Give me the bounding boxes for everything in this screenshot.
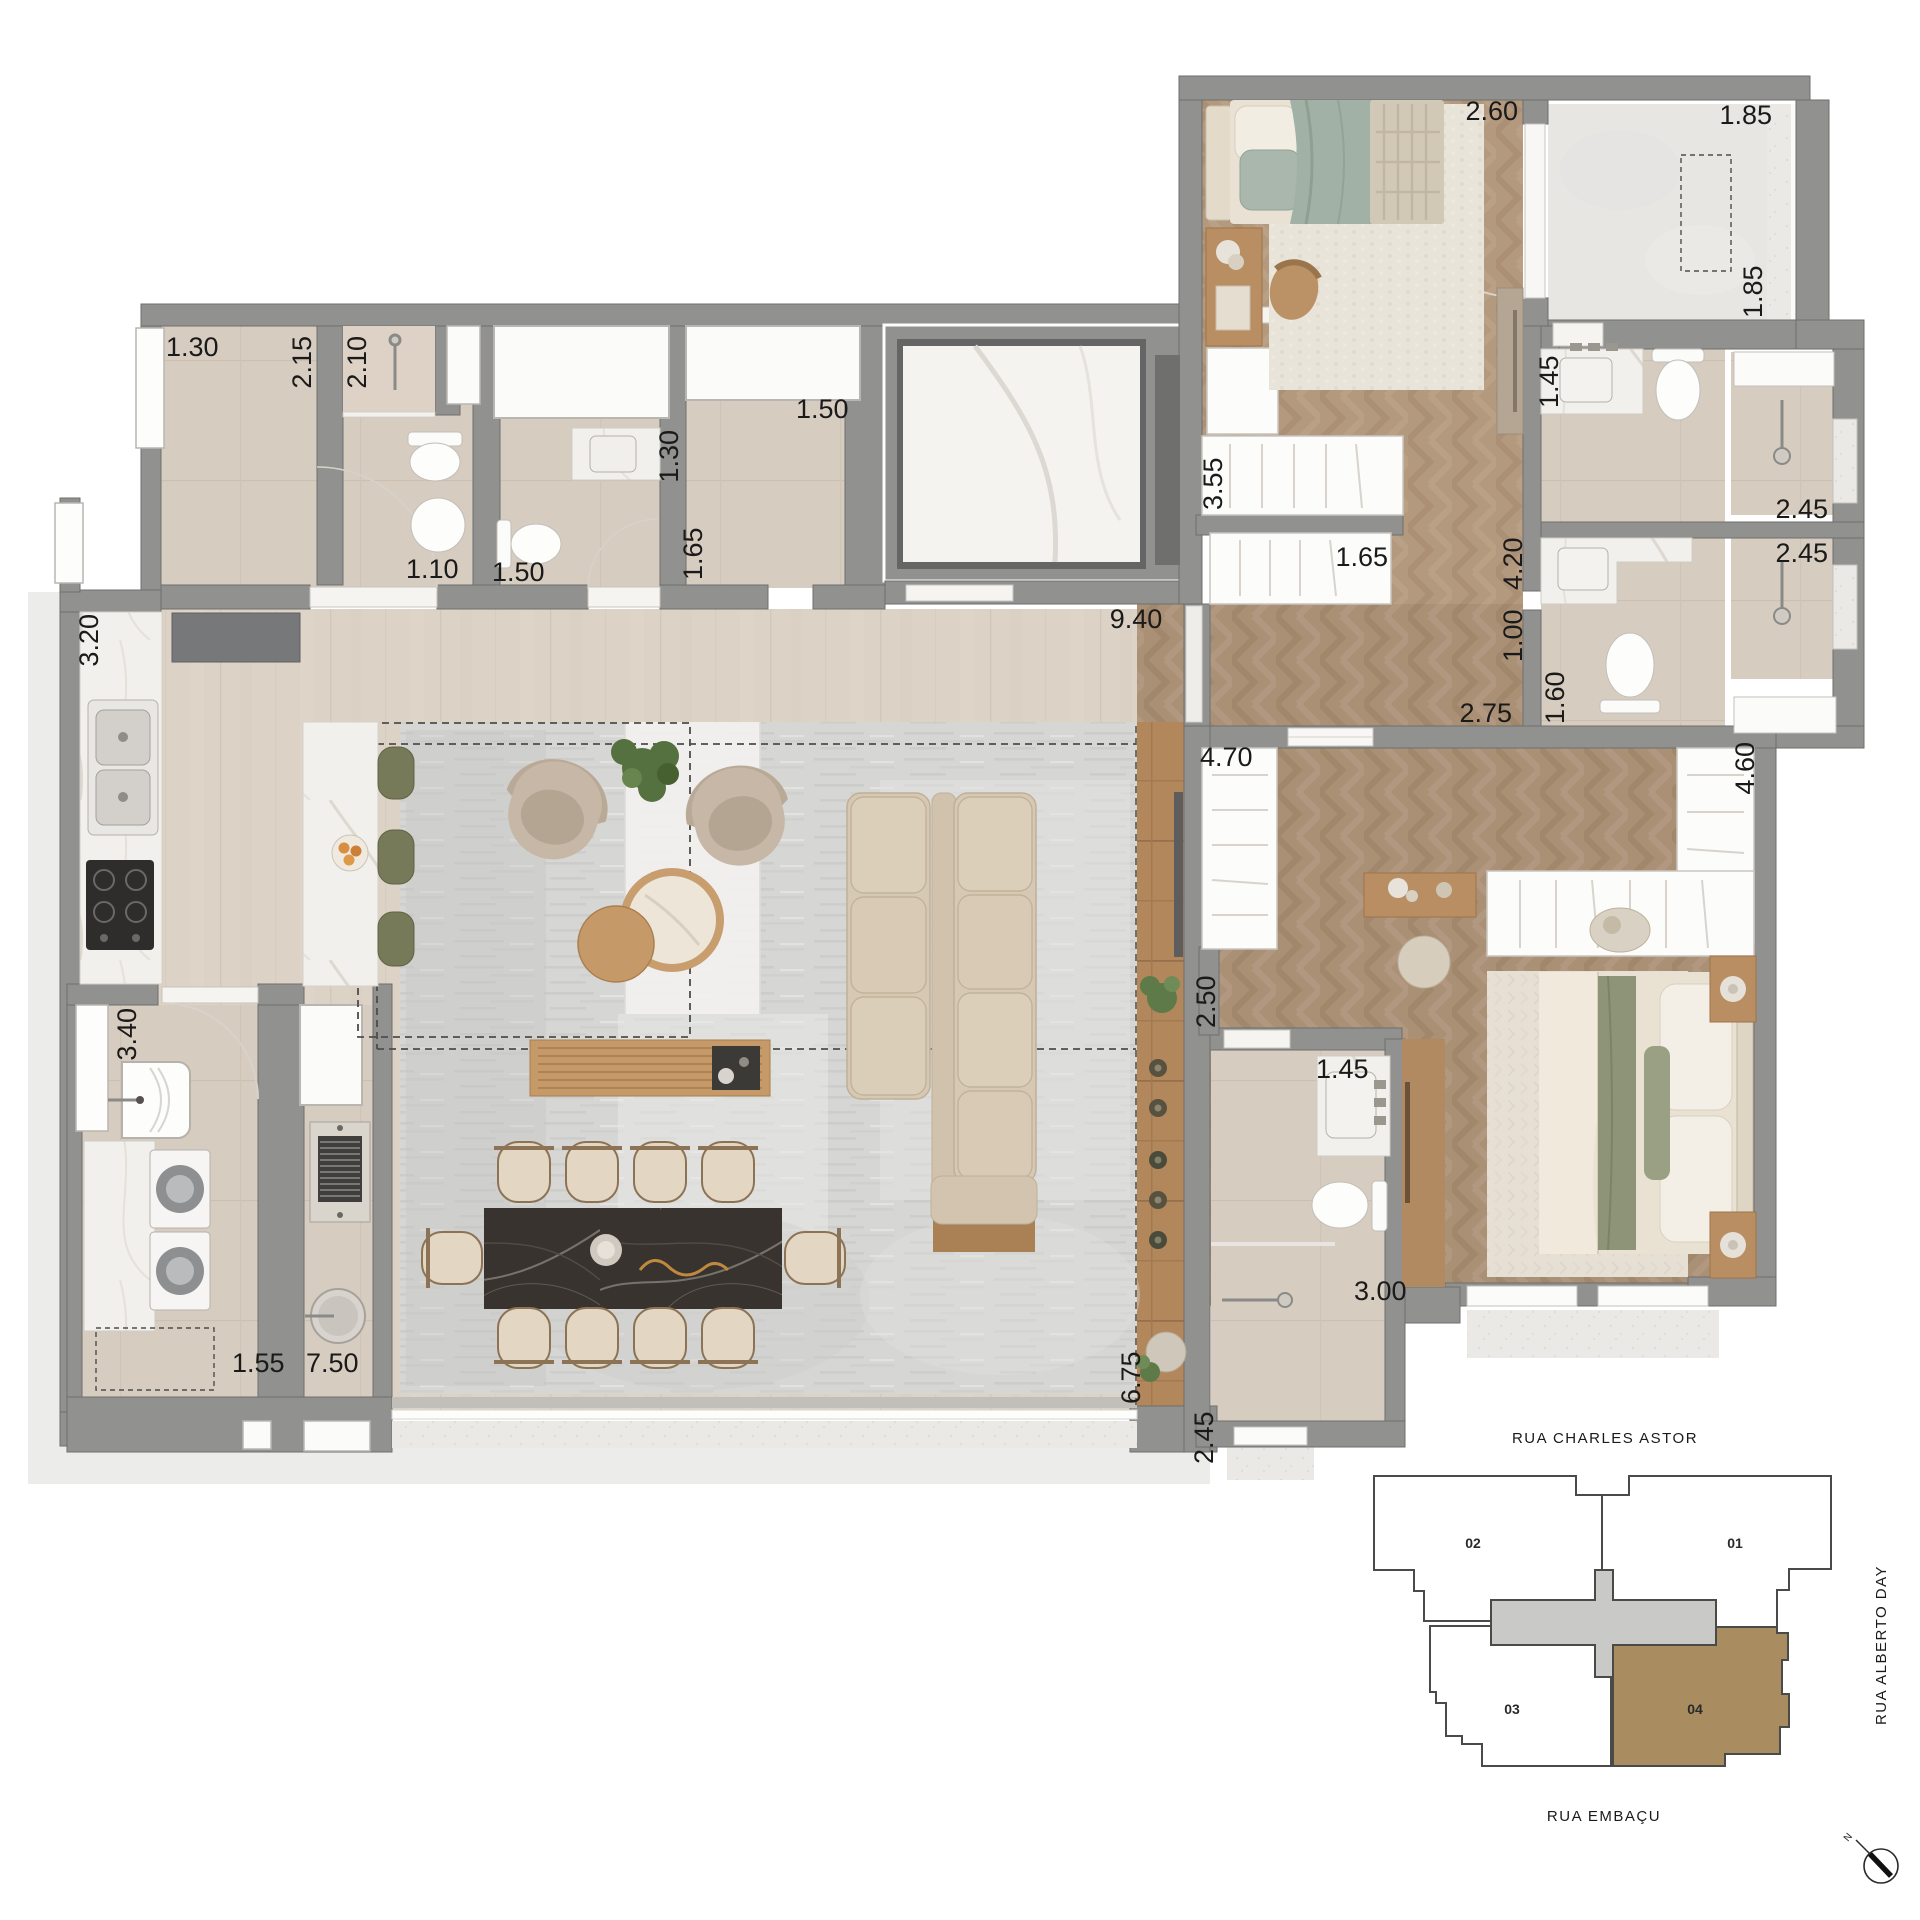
svg-text:1.50: 1.50 xyxy=(796,394,849,424)
svg-text:6.75: 6.75 xyxy=(1116,1351,1146,1404)
svg-text:1.65: 1.65 xyxy=(678,527,708,580)
svg-text:1.10: 1.10 xyxy=(406,554,459,584)
svg-text:1.50: 1.50 xyxy=(492,557,545,587)
svg-text:2.45: 2.45 xyxy=(1775,538,1828,568)
svg-text:2.10: 2.10 xyxy=(342,336,372,389)
svg-text:9.40: 9.40 xyxy=(1110,604,1163,634)
svg-text:01: 01 xyxy=(1727,1535,1743,1551)
svg-text:1.00: 1.00 xyxy=(1498,609,1528,662)
svg-text:1.45: 1.45 xyxy=(1534,355,1564,408)
svg-text:1.45: 1.45 xyxy=(1316,1054,1369,1084)
svg-text:1.55: 1.55 xyxy=(232,1348,285,1378)
svg-text:2.15: 2.15 xyxy=(287,336,317,389)
svg-text:1.60: 1.60 xyxy=(1540,671,1570,724)
svg-text:02: 02 xyxy=(1465,1535,1481,1551)
svg-text:3.20: 3.20 xyxy=(74,614,104,667)
svg-text:1.30: 1.30 xyxy=(654,430,684,483)
svg-text:1.30: 1.30 xyxy=(166,332,219,362)
svg-text:RUA EMBAÇU: RUA EMBAÇU xyxy=(1547,1808,1661,1825)
svg-text:1.85: 1.85 xyxy=(1738,265,1768,318)
svg-text:3.00: 3.00 xyxy=(1354,1276,1407,1306)
svg-text:2.60: 2.60 xyxy=(1465,96,1518,126)
svg-text:03: 03 xyxy=(1504,1701,1520,1717)
svg-text:2.45: 2.45 xyxy=(1775,494,1828,524)
svg-text:4.70: 4.70 xyxy=(1200,742,1253,772)
svg-text:1.65: 1.65 xyxy=(1335,542,1388,572)
svg-text:04: 04 xyxy=(1687,1701,1703,1717)
svg-text:1.85: 1.85 xyxy=(1719,100,1772,130)
svg-text:RUA ALBERTO DAY: RUA ALBERTO DAY xyxy=(1873,1565,1890,1725)
svg-text:2.45: 2.45 xyxy=(1189,1411,1219,1464)
svg-text:7.50: 7.50 xyxy=(306,1348,359,1378)
svg-text:2.50: 2.50 xyxy=(1191,975,1221,1028)
svg-text:3.40: 3.40 xyxy=(112,1008,142,1061)
svg-text:4.60: 4.60 xyxy=(1730,742,1760,795)
svg-text:4.20: 4.20 xyxy=(1498,537,1528,590)
svg-text:2.75: 2.75 xyxy=(1459,698,1512,728)
svg-text:RUA CHARLES ASTOR: RUA CHARLES ASTOR xyxy=(1512,1430,1698,1447)
svg-text:3.55: 3.55 xyxy=(1198,457,1228,510)
